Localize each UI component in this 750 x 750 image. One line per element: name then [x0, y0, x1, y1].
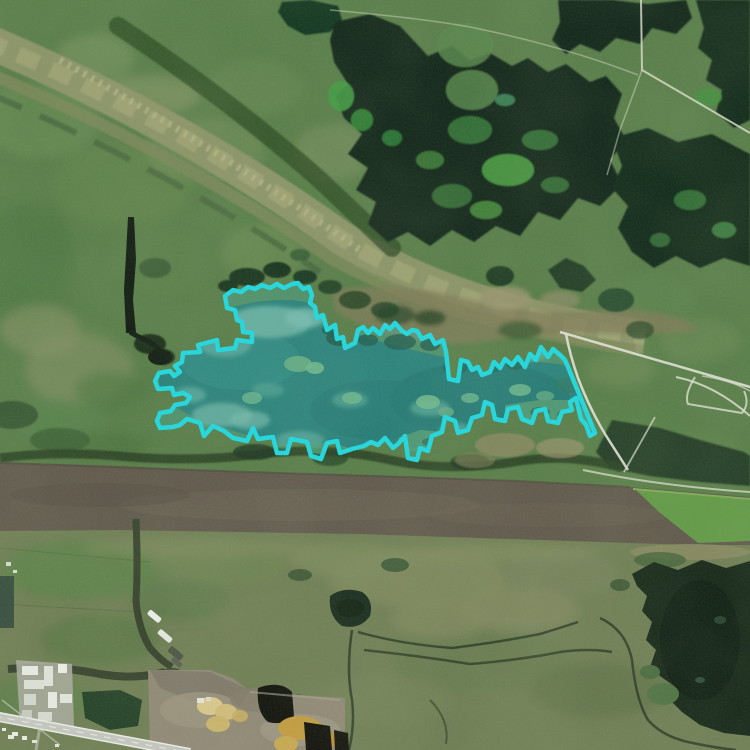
- screenshot-root: [0, 0, 750, 750]
- map-canvas[interactable]: [0, 0, 750, 750]
